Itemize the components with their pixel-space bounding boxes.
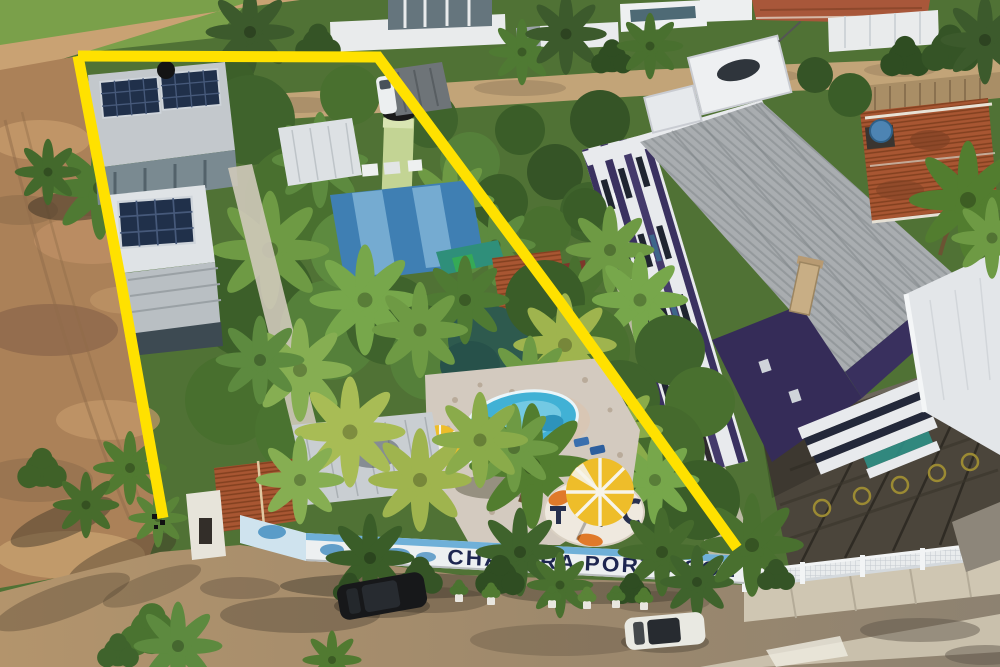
solar-panels-2 [118, 197, 195, 248]
aerial-photo: CHÁCARA PORTO SOL [0, 0, 1000, 667]
water-tower [382, 107, 415, 194]
solar-panels [100, 77, 161, 118]
gatehouse-door [199, 518, 212, 544]
water-tank-black [157, 61, 175, 79]
umbrella-large [566, 458, 634, 526]
aerial-photo-canvas: CHÁCARA PORTO SOL [0, 0, 1000, 667]
blue-water-tank [870, 120, 892, 142]
